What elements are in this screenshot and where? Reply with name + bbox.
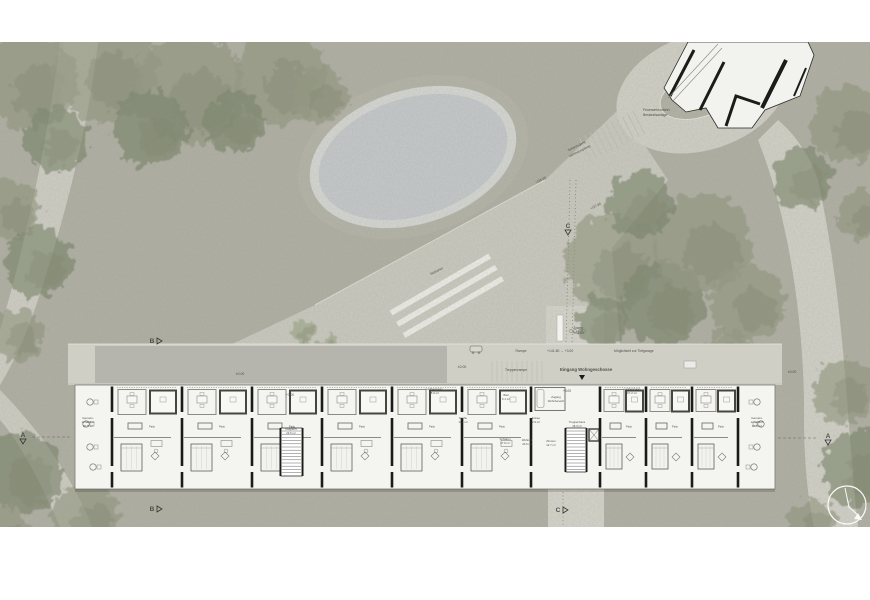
door-gap <box>390 412 393 418</box>
table <box>609 396 619 403</box>
door-gap <box>180 466 183 472</box>
stair-wall <box>565 428 567 472</box>
table <box>337 396 347 403</box>
plan-label: ±0.00 <box>788 370 797 374</box>
door-gap <box>250 466 253 472</box>
door-gap <box>736 412 739 418</box>
patio-label: Patio <box>718 425 724 429</box>
plan-label: +141.80 → +3.00 <box>547 349 573 353</box>
plan-label: Rampe <box>516 349 527 353</box>
door-gap <box>320 412 323 418</box>
table <box>197 396 207 403</box>
room-label: 20.6 m² <box>522 442 532 446</box>
patio-label: Patio <box>499 425 505 429</box>
party-wall <box>691 387 694 488</box>
plan-label: Treppenrampe <box>505 368 527 372</box>
service-box <box>684 361 696 368</box>
room-label: 23.5 m² <box>286 431 296 435</box>
table <box>407 396 417 403</box>
party-wall <box>321 387 324 488</box>
door-gap <box>180 412 183 418</box>
table <box>701 396 711 403</box>
table <box>655 396 665 403</box>
stair-wall <box>302 428 304 476</box>
patio-label: Patio <box>429 425 435 429</box>
room-label: 11.4 m² <box>458 420 467 424</box>
door-gap <box>529 466 532 472</box>
plan-label: ±0.00 <box>458 365 467 369</box>
plan-label: +3.00 <box>563 389 571 393</box>
patio-label: Patio <box>626 425 632 429</box>
table <box>127 396 137 403</box>
room-label: 18.3 m² <box>572 424 582 428</box>
loggia-box <box>718 391 735 412</box>
canopy-shadow <box>95 346 447 383</box>
stair-wall <box>586 428 588 472</box>
site-plan-svg: PatioPatioPatioPatioPatioPatioPatioPatio… <box>0 0 870 600</box>
door-gap <box>110 412 113 418</box>
section-marker-letter: A <box>21 432 26 439</box>
section-marker-letter: B <box>150 506 155 513</box>
plan-label: ±0.00 <box>236 372 245 376</box>
plan-label: Feuerwehrzufahrt <box>643 108 670 112</box>
room-label: 2.9 m² <box>532 420 540 424</box>
tree-shade <box>0 525 23 556</box>
party-wall <box>391 387 394 488</box>
door-gap <box>460 466 463 472</box>
door-gap <box>320 466 323 472</box>
plan-label: Zuweg <box>573 326 583 330</box>
table <box>267 396 277 403</box>
room-label: 17.6 m² <box>500 441 510 445</box>
site-plan-canvas: PatioPatioPatioPatioPatioPatioPatioPatio… <box>0 0 870 600</box>
plan-area: PatioPatioPatioPatioPatioPatioPatioPatio… <box>0 10 870 563</box>
bench <box>557 315 563 341</box>
party-wall <box>111 387 114 488</box>
patio-label: Patio <box>359 425 365 429</box>
door-gap <box>644 466 647 472</box>
door-gap <box>598 466 601 472</box>
section-marker-letter: C <box>566 223 571 230</box>
building-plan: PatioPatioPatioPatioPatioPatioPatioPatio… <box>75 385 775 492</box>
party-wall <box>737 387 740 488</box>
plan-label: Möglichkeit zur Tiefgarage <box>614 349 654 353</box>
section-marker-letter: C <box>556 507 561 514</box>
loggia-box <box>672 391 689 412</box>
party-wall <box>181 387 184 488</box>
door-gap <box>598 412 601 418</box>
plan-label: Eingang Wohngeschosse <box>560 367 613 372</box>
table <box>477 396 487 403</box>
section-marker-letter: A <box>826 433 831 440</box>
room-label: 5.1 m² <box>502 397 510 401</box>
door-gap <box>690 412 693 418</box>
room-label: 12.7 m² <box>546 443 556 447</box>
stair-wall <box>280 428 282 476</box>
party-wall <box>645 387 648 488</box>
stair-shaft <box>281 428 302 476</box>
door-gap <box>690 466 693 472</box>
patio-label: Patio <box>672 425 678 429</box>
room-label: 30.5 m² <box>83 424 93 428</box>
plan-label: +141.50 <box>572 331 584 335</box>
door-gap <box>390 466 393 472</box>
plan-label: +3.00 <box>286 393 294 397</box>
patio-label: Patio <box>219 425 225 429</box>
section-marker-letter: B <box>150 338 155 345</box>
party-wall <box>461 387 464 488</box>
room-label: 88.9 m² <box>429 391 439 395</box>
room-label: 37.2 m² <box>627 391 637 395</box>
room-label: 30.5 m² <box>752 424 762 428</box>
party-wall <box>530 387 533 488</box>
patio-label: Patio <box>149 425 155 429</box>
door-gap <box>250 412 253 418</box>
door-gap <box>736 466 739 472</box>
door-gap <box>110 466 113 472</box>
door-gap <box>644 412 647 418</box>
party-wall <box>251 387 254 488</box>
room-label: Wohnbereich <box>548 399 565 403</box>
plan-label: Bestandsanlage <box>643 113 667 117</box>
building-shadow <box>75 489 775 492</box>
